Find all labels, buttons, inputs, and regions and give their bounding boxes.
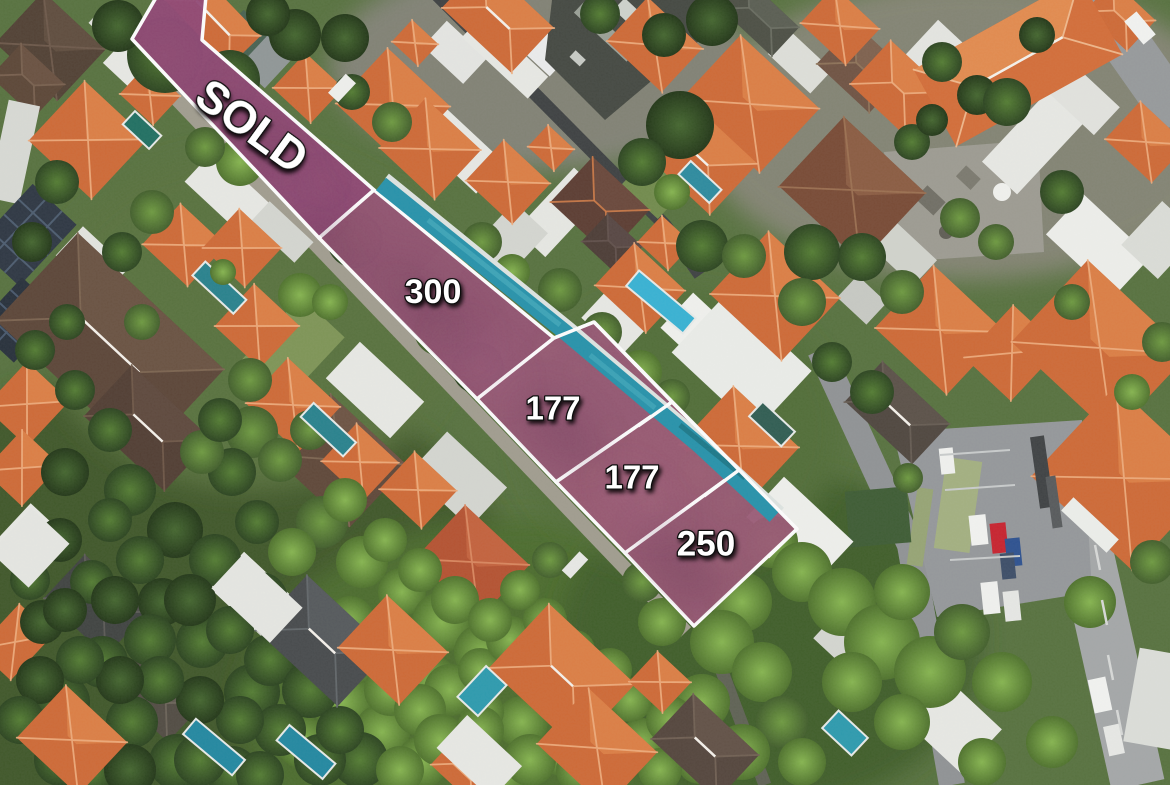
svg-text:177: 177 — [525, 390, 580, 427]
svg-text:300: 300 — [405, 273, 462, 311]
svg-text:177: 177 — [604, 459, 659, 496]
svg-text:250: 250 — [677, 525, 735, 564]
